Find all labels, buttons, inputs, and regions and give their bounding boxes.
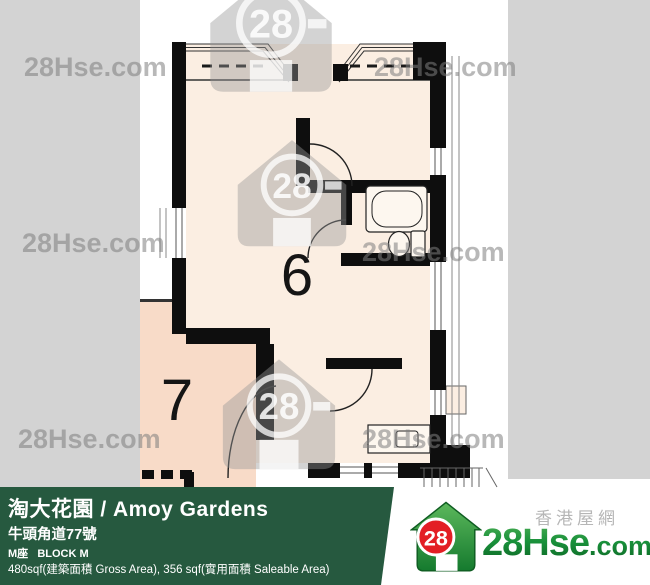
wall: [186, 328, 270, 344]
floorplan-image: 6 7 28 28 28 28Hse.com 28Hse.com 28Hse.c…: [0, 0, 650, 585]
bottom-wall: [430, 445, 470, 463]
svg-text:28: 28: [424, 526, 448, 551]
unit7-dashed-wall: [142, 470, 154, 479]
toilet-bowl: [389, 232, 410, 257]
wall: [283, 64, 298, 81]
kitchen-counter: [368, 425, 430, 453]
right-wall: [430, 80, 446, 148]
unit7-dashed-wall: [161, 470, 173, 479]
toilet-tank: [411, 231, 425, 257]
property-title: 淘大花園 / Amoy Gardens: [8, 493, 268, 523]
wall: [296, 118, 310, 186]
unit7-dashed-wall: [184, 472, 194, 488]
property-info-banner: 淘大花園 / Amoy Gardens 牛頭角道77號 M座 BLOCK M 4…: [0, 487, 450, 585]
unit6-label: 6: [281, 243, 313, 308]
wall: [172, 258, 186, 334]
property-block: M座 BLOCK M: [8, 545, 89, 561]
exterior-ledge: [486, 468, 497, 487]
property-address: 牛頭角道77號: [8, 523, 97, 544]
window: [372, 463, 398, 478]
logo-house-icon: 28: [410, 500, 482, 574]
site-logo: 28 香港屋網 28Hse.com: [408, 496, 643, 582]
unit7-label: 7: [161, 368, 193, 433]
logo-site-name: 28Hse.com: [482, 522, 650, 565]
wall: [413, 42, 446, 80]
wall: [172, 42, 186, 208]
kitchen-bay-window: [446, 386, 466, 414]
wall: [333, 64, 348, 81]
right-wall: [430, 330, 446, 390]
right-wall: [430, 175, 446, 262]
window: [340, 463, 364, 478]
unit7-room-area: [140, 332, 256, 488]
kitchen-wall: [326, 358, 402, 369]
property-area-info: 480sqf(建築面積 Gross Area), 356 sqf(實用面積 Sa…: [8, 561, 329, 577]
bathtub: [366, 186, 427, 232]
